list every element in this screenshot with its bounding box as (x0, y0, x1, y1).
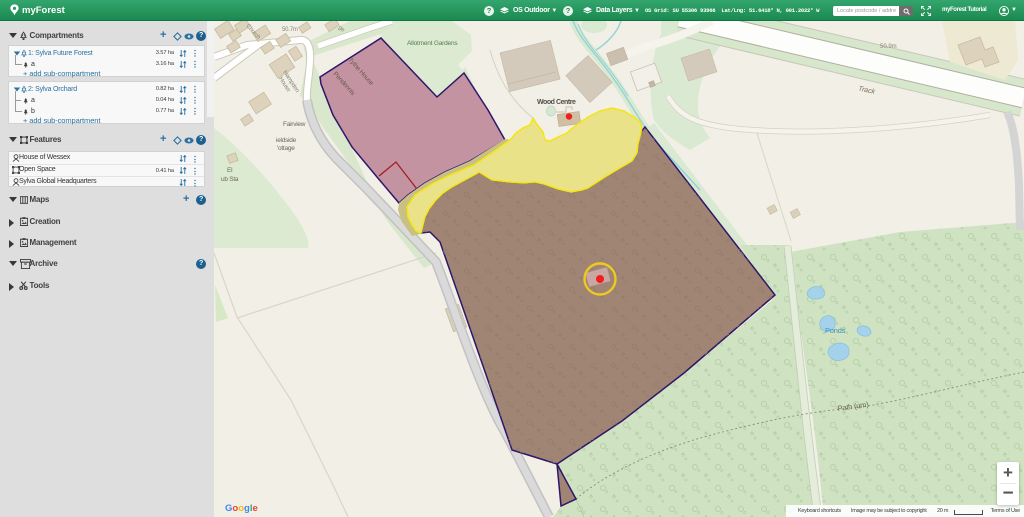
svg-text:Wood Centre: Wood Centre (537, 99, 576, 106)
svg-text:El: El (227, 167, 233, 174)
svg-text:50.9m: 50.9m (880, 44, 897, 50)
svg-text:50.7m: 50.7m (282, 27, 298, 33)
svg-text:ub Sta: ub Sta (221, 176, 239, 183)
svg-text:Fairview: Fairview (283, 121, 306, 128)
svg-text:ieldside: ieldside (276, 137, 297, 144)
svg-text:'ottage: 'ottage (277, 145, 295, 152)
svg-text:Ponds: Ponds (825, 326, 846, 335)
svg-text:Allotment Gardens: Allotment Gardens (407, 40, 458, 47)
